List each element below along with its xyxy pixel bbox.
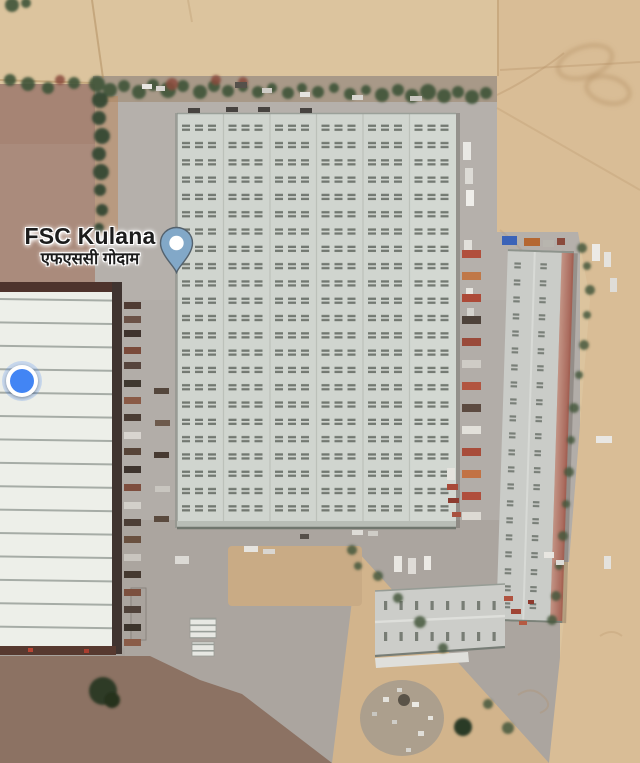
current-location-dot-icon (2, 361, 42, 401)
warehouse-east (496, 249, 578, 623)
orange-container (524, 238, 540, 246)
place-label[interactable]: FSC Kulana एफएससी गोदाम (4, 224, 176, 269)
dirt-patch (228, 546, 362, 606)
place-name: FSC Kulana (4, 224, 176, 249)
warehouse-main (175, 113, 460, 528)
warehouse-west (0, 282, 122, 655)
satellite-imagery (0, 0, 640, 763)
location-dot-core (10, 369, 34, 393)
place-pin-icon[interactable] (159, 226, 194, 276)
map-canvas[interactable]: FSC Kulana एफएससी गोदाम (0, 0, 640, 763)
blue-container (502, 236, 517, 245)
place-local-name: एफएससी गोदाम (4, 251, 176, 269)
